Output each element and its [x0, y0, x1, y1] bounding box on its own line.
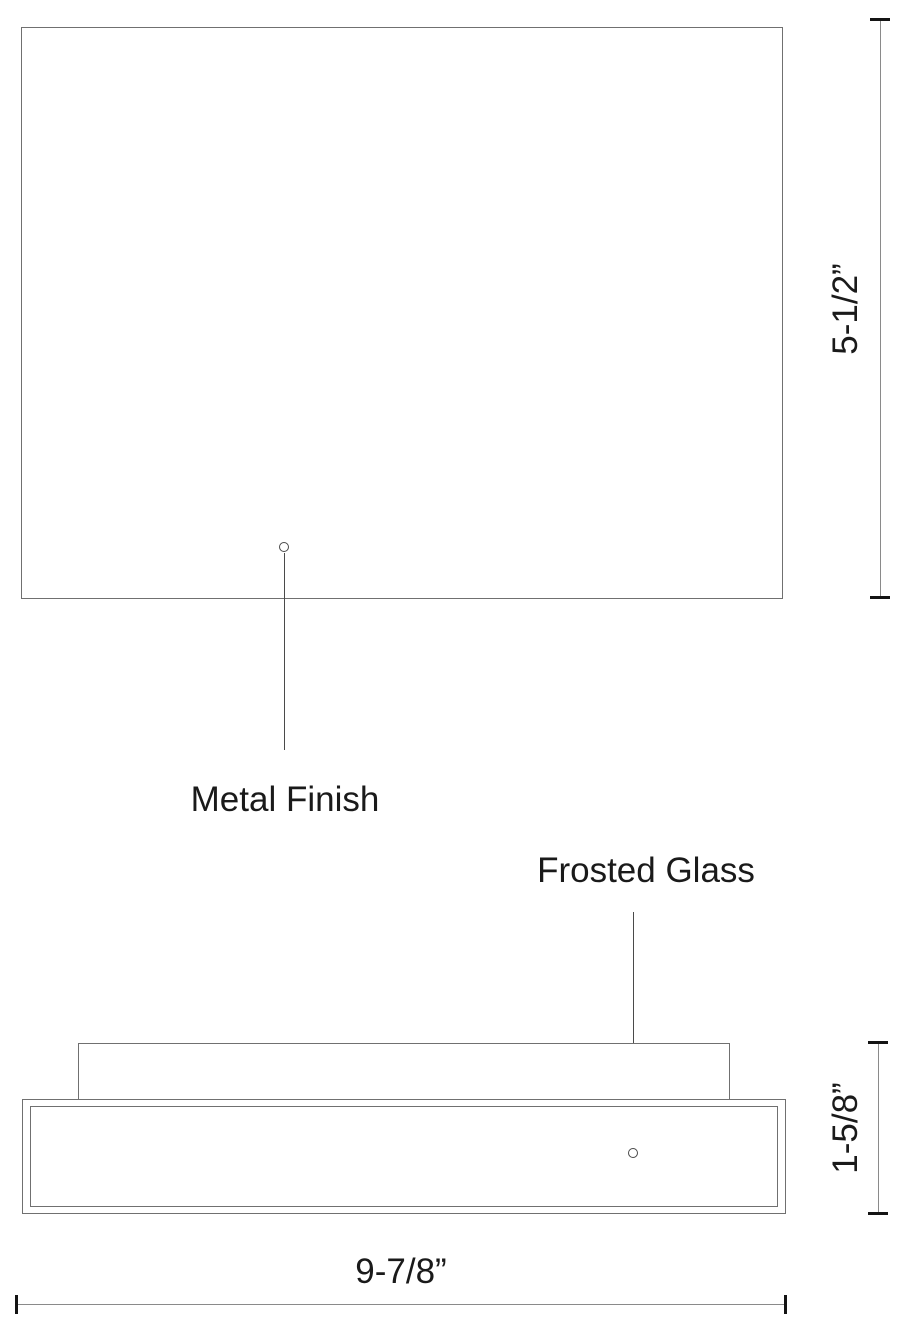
- front-height-dimension-tick-bottom: [870, 596, 890, 599]
- width-dimension-tick-left: [15, 1295, 18, 1314]
- metal-finish-leader-line: [284, 553, 285, 750]
- side-height-dimension-line: [878, 1042, 879, 1214]
- side-height-dimension-tick-top: [868, 1041, 888, 1044]
- spec-drawing-canvas: Metal Finish 5-1/2” Frosted Glass 1-5/8”…: [0, 0, 906, 1330]
- frosted-glass-label: Frosted Glass: [446, 851, 846, 891]
- width-dimension-line: [16, 1304, 786, 1305]
- side-height-dimension-text: 1-5/8”: [826, 1048, 866, 1208]
- frosted-glass-anchor-dot: [628, 1148, 638, 1158]
- metal-finish-label: Metal Finish: [85, 780, 485, 820]
- side-view-frame-inner-outline: [30, 1106, 778, 1207]
- side-height-dimension-tick-bottom: [868, 1212, 888, 1215]
- front-height-dimension-tick-top: [870, 18, 890, 21]
- width-dimension-text: 9-7/8”: [16, 1252, 786, 1292]
- metal-finish-anchor-dot: [279, 542, 289, 552]
- front-height-dimension-line: [880, 19, 881, 598]
- front-height-dimension-text: 5-1/2”: [826, 229, 866, 389]
- width-dimension-tick-right: [784, 1295, 787, 1314]
- front-view-outline: [21, 27, 783, 599]
- side-view-housing-outline: [78, 1043, 730, 1100]
